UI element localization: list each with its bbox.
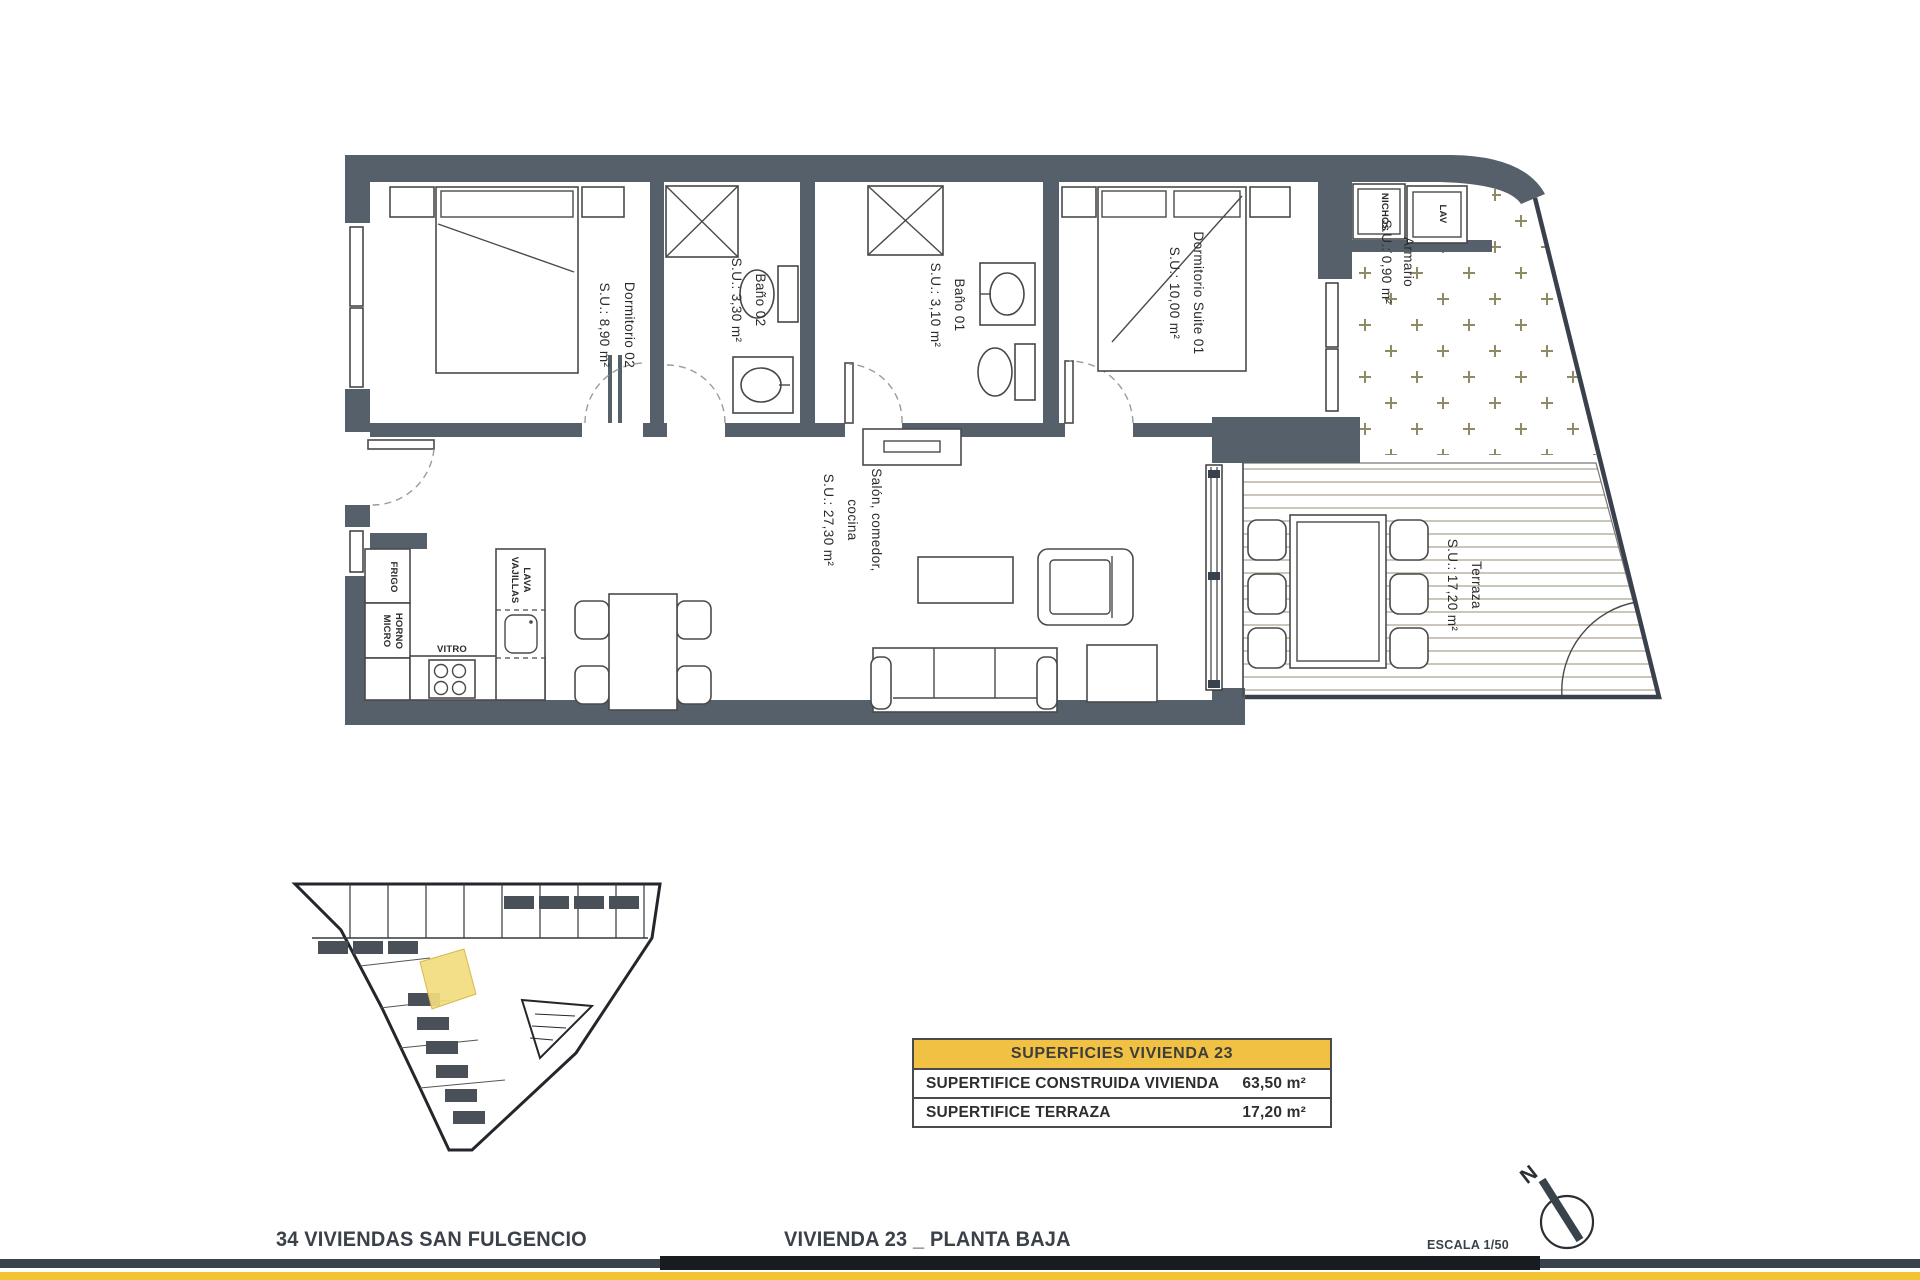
laundry-niche: NICHOS LAV xyxy=(1353,184,1467,243)
room-area: S.U.: 8,90 m² xyxy=(597,283,612,368)
dining-set xyxy=(575,594,711,710)
room-name-line2: cocina xyxy=(845,499,860,541)
surface-row-label: SUPERTIFICE CONSTRUIDA VIVIENDA xyxy=(926,1070,1219,1097)
surface-table-header: SUPERFICIES VIVIENDA 23 xyxy=(914,1040,1330,1070)
salon-label: Salón, comedor, cocina S.U.: 27,30 m² xyxy=(821,468,884,572)
surface-row-value: 17,20 m² xyxy=(1242,1099,1306,1126)
terrace-dining-set xyxy=(1248,515,1428,668)
vitro-label: VITRO xyxy=(437,644,467,655)
room-area: S.U.: 3,10 m² xyxy=(928,263,943,348)
room-name: Armario xyxy=(1401,237,1416,287)
surface-summary-table: SUPERFICIES VIVIENDA 23 SUPERTIFICE CONS… xyxy=(912,1038,1332,1128)
room-name: Terraza xyxy=(1469,561,1484,609)
room-name-line1: Salón, comedor, xyxy=(869,468,884,572)
horno-label-2: MICRO xyxy=(381,615,392,648)
kitchen-units: FRIGO HORNO MICRO VITRO LAVA VAJILLAS xyxy=(365,549,545,700)
room-name: Baño 01 xyxy=(952,278,967,331)
room-name: Dormitorio Suite 01 xyxy=(1191,231,1206,354)
bano01-label: Baño 01 S.U.: 3,10 m² xyxy=(928,263,967,348)
footer-bar-dark xyxy=(660,1256,1540,1270)
surface-row-value: 63,50 m² xyxy=(1242,1070,1306,1097)
surface-table-row: SUPERTIFICE CONSTRUIDA VIVIENDA 63,50 m² xyxy=(914,1070,1330,1097)
north-arrow-icon: N xyxy=(1516,1161,1593,1248)
room-name: Baño 02 xyxy=(753,273,768,326)
floor-plan-sheet: Dormitorio 02 S.U.: 8,90 m² Baño 02 S.U.… xyxy=(0,0,1920,1280)
room-name: Dormitorio 02 xyxy=(622,282,637,368)
surface-table-row: SUPERTIFICE TERRAZA 17,20 m² xyxy=(914,1097,1330,1126)
bano01-fixtures xyxy=(868,186,1035,400)
north-letter: N xyxy=(1516,1161,1542,1188)
lav-label: LAV xyxy=(1437,205,1448,224)
lavavajillas-label-2: VAJILLAS xyxy=(509,557,520,604)
dormitorio02-label: Dormitorio 02 S.U.: 8,90 m² xyxy=(597,282,637,368)
room-area: S.U.: 0,90 m² xyxy=(1379,220,1394,305)
site-plan-minimap xyxy=(295,884,660,1150)
lavavajillas-label-1: LAVA xyxy=(521,567,532,592)
horno-label-1: HORNO xyxy=(393,613,404,649)
scale-label: ESCALA 1/50 xyxy=(1427,1238,1509,1252)
room-area: S.U.: 27,30 m² xyxy=(821,474,836,567)
surface-row-label: SUPERTIFICE TERRAZA xyxy=(926,1099,1111,1126)
room-area: S.U.: 17,20 m² xyxy=(1445,539,1460,632)
sheet-title: VIVIENDA 23 _ PLANTA BAJA xyxy=(784,1228,1071,1252)
room-area: S.U.: 10,00 m² xyxy=(1167,247,1182,340)
project-title: 34 VIVIENDAS SAN FULGENCIO xyxy=(276,1228,587,1252)
footer-bar-yellow xyxy=(0,1272,1920,1280)
dormitorio02-furniture xyxy=(390,187,624,373)
room-area: S.U.: 3,30 m² xyxy=(729,258,744,343)
frigo-label: FRIGO xyxy=(388,561,399,592)
living-furniture xyxy=(863,429,1157,712)
